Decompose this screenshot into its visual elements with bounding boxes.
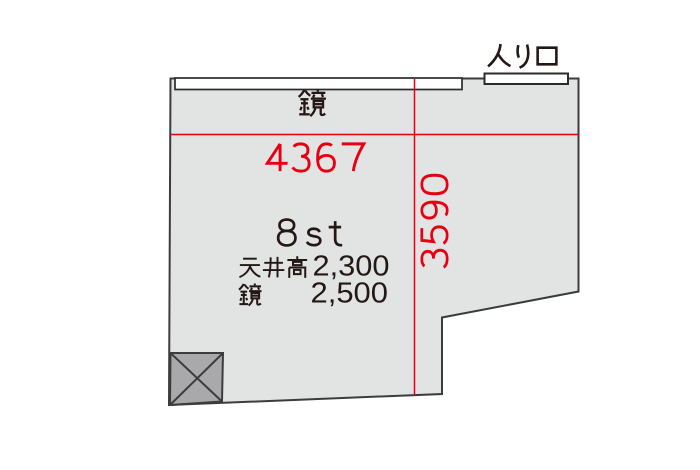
svg-text:2,500: 2,500 [311,278,389,310]
